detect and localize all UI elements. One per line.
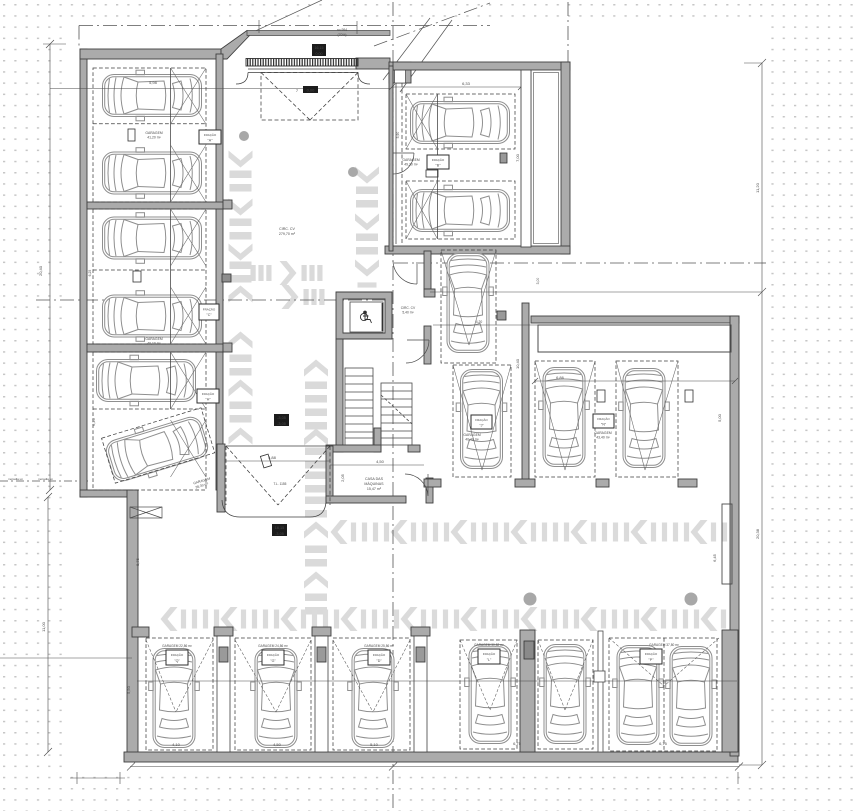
svg-text:-3,05: -3,05 (275, 532, 284, 536)
svg-text:3,00: 3,00 (536, 278, 540, 285)
svg-text:4,20: 4,20 (476, 320, 483, 324)
svg-text:moradia un: moradia un (8, 477, 23, 481)
svg-text:5,00: 5,00 (717, 413, 722, 422)
svg-text:FRAÇÃO: FRAÇÃO (373, 652, 386, 657)
svg-text:6,25: 6,25 (88, 270, 92, 277)
svg-text:GARAGEM: GARAGEM (594, 431, 612, 435)
svg-text:FRAÇÃO: FRAÇÃO (171, 652, 184, 657)
svg-text:FRAÇÃO: FRAÇÃO (475, 417, 488, 422)
svg-text:0,00: 0,00 (307, 87, 316, 92)
svg-text:FRAÇÃO: FRAÇÃO (432, 157, 445, 162)
svg-text:15,47 m²: 15,47 m² (367, 487, 382, 491)
svg-text:"N": "N" (601, 423, 607, 427)
svg-text:20,38: 20,38 (755, 528, 760, 539)
svg-text:GARAGEM: GARAGEM (145, 337, 163, 341)
svg-text:16,15: 16,15 (275, 526, 285, 530)
svg-text:4,50: 4,50 (273, 742, 282, 747)
svg-text:6,75: 6,75 (513, 741, 522, 746)
svg-text:GARAGEM 37,80 m²: GARAGEM 37,80 m² (649, 643, 679, 647)
svg-text:FRAÇÃO: FRAÇÃO (645, 651, 658, 656)
svg-text:20,40: 20,40 (38, 265, 43, 276)
svg-text:16,15: 16,15 (315, 46, 324, 50)
svg-text:GARAGEM 24,86 m²: GARAGEM 24,86 m² (258, 644, 288, 648)
svg-text:11,20: 11,20 (755, 182, 760, 192)
svg-text:"B": "B" (436, 164, 442, 168)
svg-text:7,00: 7,00 (515, 153, 520, 162)
svg-text:FRAÇÃO: FRAÇÃO (203, 307, 216, 312)
svg-text:-3,05: -3,05 (277, 416, 286, 420)
svg-text:"A": "A" (208, 139, 214, 143)
svg-text:5,10: 5,10 (370, 742, 379, 747)
svg-text:6,25: 6,25 (91, 417, 96, 426)
svg-text:43,40 m²: 43,40 m² (596, 436, 610, 440)
svg-text:40,40 m²: 40,40 m² (465, 438, 479, 442)
svg-text:40,10 m²: 40,10 m² (147, 342, 161, 346)
svg-text:GARAGEM 25,86 m²: GARAGEM 25,86 m² (364, 644, 394, 648)
svg-text:"Q": "Q" (174, 659, 180, 663)
svg-text:5,40 m²: 5,40 m² (402, 311, 414, 315)
svg-text:2,05: 2,05 (340, 473, 345, 482)
svg-text:CASA DAS: CASA DAS (365, 477, 384, 481)
svg-text:"L": "L" (487, 658, 492, 662)
svg-text:5,75: 5,75 (135, 557, 140, 566)
svg-text:"C": "C" (206, 313, 212, 317)
svg-text:FRAÇÃO: FRAÇÃO (597, 416, 610, 421)
svg-text:moradia un: moradia un (38, 477, 53, 481)
svg-text:(70%): (70%) (337, 33, 346, 37)
svg-text:"H": "H" (205, 398, 211, 402)
svg-text:"P": "P" (649, 658, 655, 662)
svg-text:"G": "G" (270, 659, 276, 663)
svg-text:T.L. 1155: T.L. 1155 (274, 482, 287, 486)
svg-text:41,20 m²: 41,20 m² (147, 136, 161, 140)
svg-text:GARAGEM: GARAGEM (463, 433, 481, 437)
svg-text:0,00: 0,00 (316, 52, 323, 56)
svg-text:6,45: 6,45 (712, 553, 717, 562)
svg-text:4,50: 4,50 (376, 459, 385, 464)
svg-text:4,10: 4,10 (172, 742, 181, 747)
svg-text:6,33: 6,33 (462, 81, 471, 86)
svg-text:FRAÇÃO: FRAÇÃO (202, 391, 215, 396)
svg-text:6,86: 6,86 (556, 375, 565, 380)
svg-text:MÁQUINAS: MÁQUINAS (364, 482, 384, 486)
svg-text:"J": "J" (479, 424, 484, 428)
svg-text:-3,05: -3,05 (277, 422, 286, 426)
svg-text:"D": "D" (376, 659, 382, 663)
svg-text:GARAGEM: GARAGEM (402, 158, 420, 162)
svg-text:FRAÇÃO: FRAÇÃO (267, 652, 280, 657)
svg-text:4,88: 4,88 (268, 455, 277, 460)
svg-text:10,40: 10,40 (515, 358, 520, 369)
svg-text:5,98: 5,98 (149, 80, 158, 85)
svg-text:CIRC. CV: CIRC. CV (401, 306, 416, 310)
svg-text:49,20 m²: 49,20 m² (404, 163, 418, 167)
svg-text:5,50: 5,50 (126, 685, 131, 694)
svg-text:11,00: 11,00 (41, 621, 46, 631)
svg-text:GARAGEM 22,86 m²: GARAGEM 22,86 m² (162, 644, 192, 648)
svg-text:5,90: 5,90 (396, 132, 400, 139)
svg-text:GARAGEM 30,82 m²: GARAGEM 30,82 m² (474, 643, 504, 647)
svg-text:6,75: 6,75 (659, 741, 668, 746)
svg-text:GARAGEM: GARAGEM (145, 131, 163, 135)
svg-text:279,70 m²: 279,70 m² (279, 232, 296, 236)
svg-text:FRAÇÃO: FRAÇÃO (204, 132, 217, 137)
svg-text:no 994: no 994 (337, 28, 347, 32)
svg-text:FRAÇÃO: FRAÇÃO (483, 651, 496, 656)
svg-text:CIRC. CV: CIRC. CV (279, 227, 295, 231)
